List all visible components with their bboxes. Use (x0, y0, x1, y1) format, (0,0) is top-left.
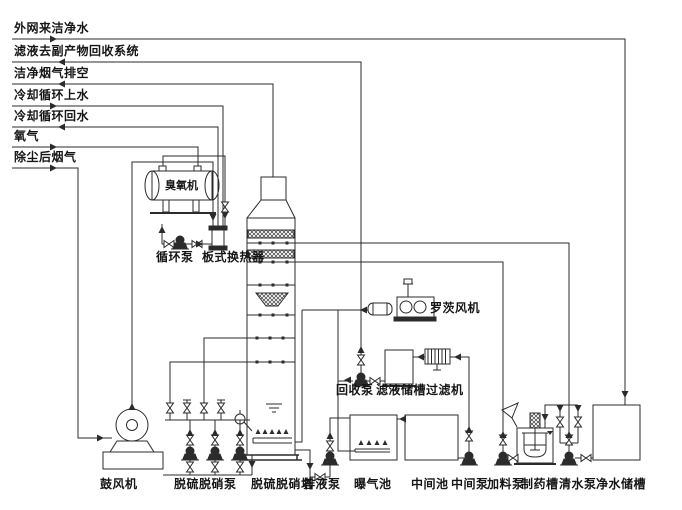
pipe-spray-left2 (170, 362, 247, 420)
feed-label-filtrate-to-byproduct: 滤液去副产物回收系统 (14, 45, 139, 58)
feed-funnel (502, 403, 518, 418)
label-desulf-denitr-pump: 脱硫脱硝泵 (174, 478, 237, 491)
label-intermediate-pump: 中间泵 (451, 478, 489, 491)
pipe-midpump (450, 357, 469, 458)
process-pipes (132, 156, 593, 477)
pipe-blower-to-hx (132, 162, 213, 409)
filtrate-tank (382, 350, 416, 386)
pipe-drain-pump (295, 418, 350, 477)
pipe-spray-left1 (204, 338, 247, 420)
line-dedusted-flue-gas (12, 168, 112, 438)
piping-layer (0, 0, 682, 510)
roots-blower (368, 279, 436, 321)
dosing-tank (502, 403, 556, 464)
label-clean-water-tank: 净水储槽 (596, 478, 646, 491)
line-cooling-supply (12, 106, 223, 227)
pipe-spray-a (295, 243, 569, 452)
label-circulation-pump: 循环泵 (156, 251, 194, 264)
label-blower: 鼓风机 (100, 478, 138, 491)
feed-label-cooling-cycle-return: 冷却循环回水 (14, 110, 89, 123)
label-filtrate-tank: 滤液储槽 (376, 384, 426, 397)
label-intermediate-pool: 中间池 (411, 478, 449, 491)
filter (425, 349, 450, 370)
feed-line-paths (12, 39, 625, 438)
tower-base (240, 455, 302, 460)
aeration-pool (350, 415, 397, 460)
feed-label-clean-flue-gas-vent: 洁净烟气排空 (14, 67, 89, 80)
silencer (368, 303, 392, 315)
clean-water-tank (593, 405, 640, 460)
feed-label-cooling-cycle-supply: 冷却循环上水 (14, 89, 89, 102)
label-recovery-pump: 回收泵 (336, 384, 374, 397)
feed-label-external-clean-water: 外网来洁净水 (14, 22, 89, 35)
pipe-feedpump (503, 262, 517, 458)
process-flow-diagram: 外网来洁净水 滤液去副产物回收系统 洁净烟气排空 冷却循环上水 冷却循环回水 氧… (0, 0, 682, 510)
feed-label-dedusted-flue-gas: 除尘后烟气 (14, 151, 77, 164)
label-feed-pump: 加料泵 (487, 478, 525, 491)
flow-arrows (50, 36, 629, 471)
label-filter: 过滤机 (426, 384, 464, 397)
label-ozone-machine: 臭氧机 (165, 180, 198, 193)
label-roots-blower: 罗茨风机 (430, 302, 480, 315)
label-dosing-tank: 制药槽 (521, 478, 559, 491)
collector-tray (256, 293, 288, 306)
blower (103, 409, 163, 469)
intermediate-pool (405, 415, 458, 460)
label-plate-heat-exchanger: 板式换热器 (202, 251, 265, 264)
valves (164, 202, 591, 481)
line-external-clean-water (12, 39, 625, 405)
pipe-spray-b (295, 262, 503, 452)
label-drain-pump: 排液泵 (303, 478, 341, 491)
feed-label-oxygen: 氧气 (14, 130, 39, 143)
plate-heat-exchanger (209, 226, 227, 250)
tower-aeration-pipe (253, 438, 292, 443)
label-aeration-pool: 曝气池 (354, 478, 392, 491)
label-clean-water-pump: 清水泵 (559, 478, 597, 491)
drain-pump (321, 452, 339, 465)
liquid-level-mark (266, 404, 282, 412)
pipe-circpump-hx (162, 224, 212, 244)
desulf-denitr-pumps (181, 447, 249, 460)
desulf-denitr-tower (235, 177, 302, 460)
